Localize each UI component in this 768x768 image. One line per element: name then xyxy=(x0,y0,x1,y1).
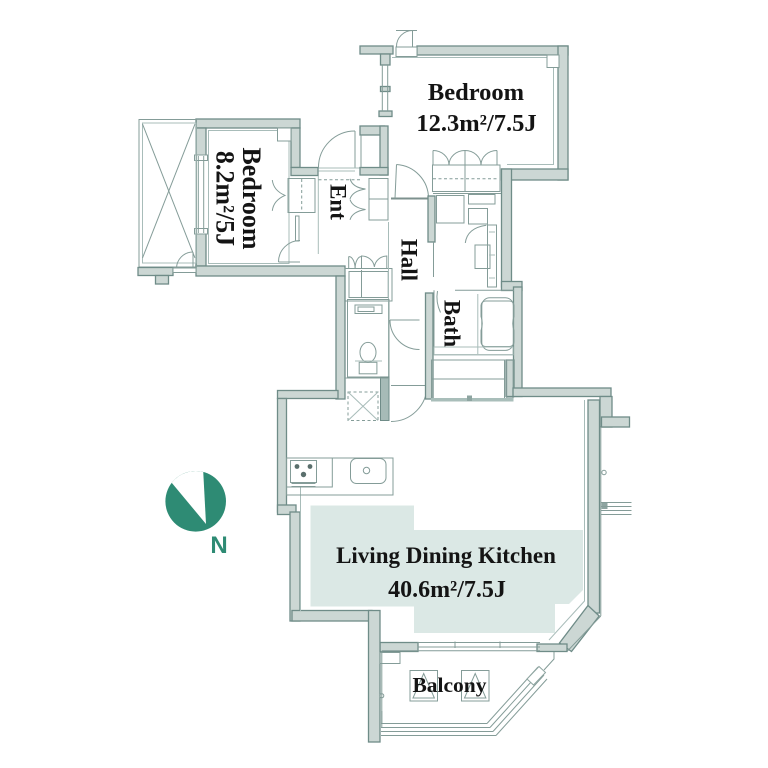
svg-text:Bath: Bath xyxy=(440,300,465,348)
svg-text:8.2m²/5J: 8.2m²/5J xyxy=(211,151,240,246)
svg-text:40.6m²/7.5J: 40.6m²/7.5J xyxy=(388,577,506,603)
svg-text:Living Dining Kitchen: Living Dining Kitchen xyxy=(336,543,556,568)
svg-text:Ent: Ent xyxy=(326,184,351,220)
svg-text:Balcony: Balcony xyxy=(412,673,486,697)
svg-text:12.3m²/7.5J: 12.3m²/7.5J xyxy=(416,110,536,137)
svg-text:Bedroom: Bedroom xyxy=(428,79,524,106)
svg-text:N: N xyxy=(210,532,227,559)
svg-text:Bedroom: Bedroom xyxy=(237,147,266,249)
svg-text:Hall: Hall xyxy=(397,239,422,281)
